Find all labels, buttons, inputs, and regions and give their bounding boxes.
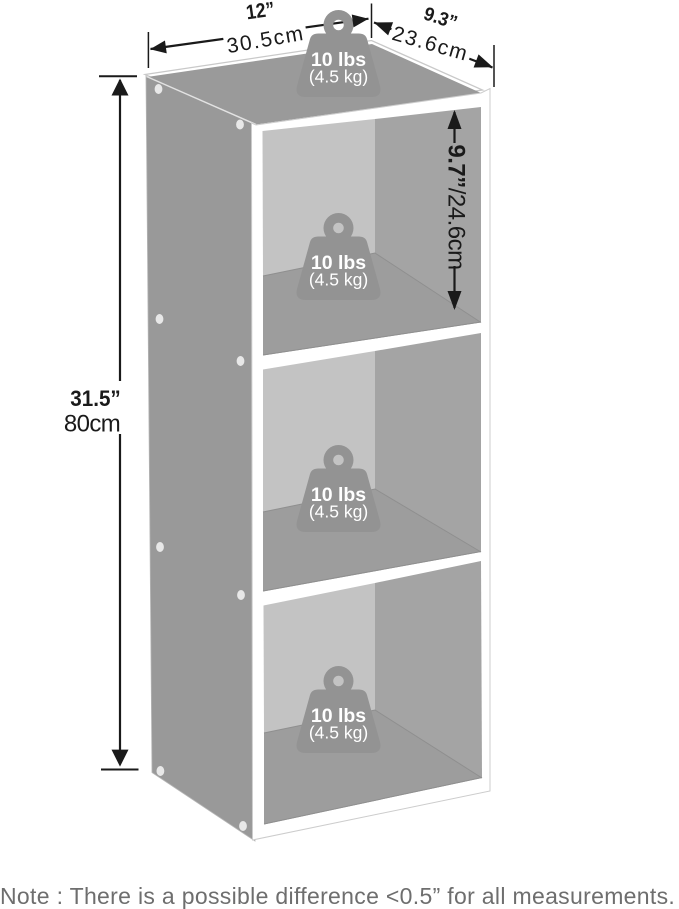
- svg-text:80cm: 80cm: [64, 411, 120, 438]
- svg-text:(4.5 kg): (4.5 kg): [309, 723, 368, 743]
- svg-text:(4.5 kg): (4.5 kg): [309, 502, 368, 522]
- svg-text:(4.5 kg): (4.5 kg): [309, 67, 368, 87]
- svg-text:(4.5 kg): (4.5 kg): [309, 270, 368, 290]
- svg-text:Note : There is a possible dif: Note : There is a possible difference <0…: [0, 883, 675, 909]
- svg-text:12”: 12”: [245, 0, 276, 24]
- svg-text:31.5”: 31.5”: [70, 386, 121, 411]
- svg-text:9.7”/24.6cm: 9.7”/24.6cm: [442, 144, 469, 269]
